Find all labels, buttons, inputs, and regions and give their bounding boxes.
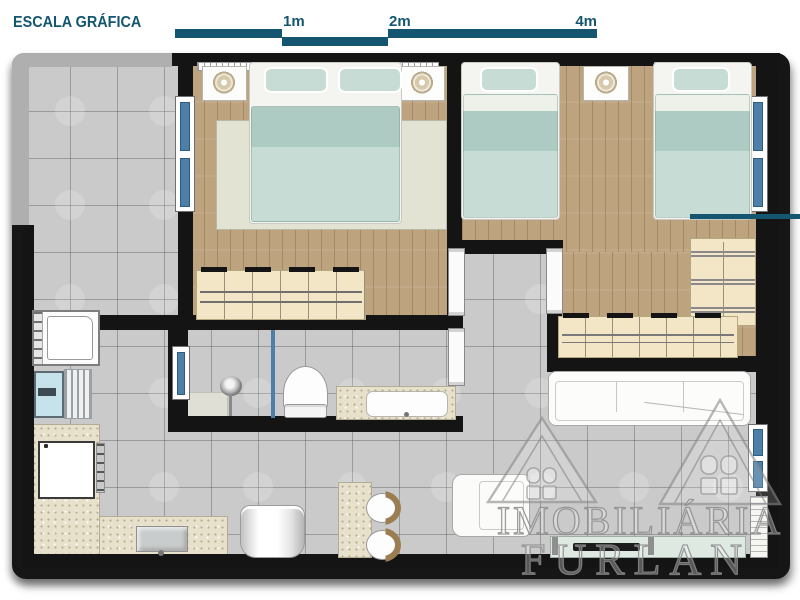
window-pane	[753, 461, 763, 488]
lamp-icon	[592, 71, 620, 95]
scale-label-2m: 2m	[389, 13, 411, 30]
pillow	[482, 69, 536, 90]
scale-bar-title: ESCALA GRÁFICA	[13, 14, 175, 34]
laundry-drainboard	[64, 369, 92, 419]
wall-closet-bottom	[547, 356, 768, 372]
entry-door	[750, 496, 768, 558]
pillow	[674, 69, 728, 90]
scale-bar-segment-1-2m	[282, 37, 388, 46]
bedroom1-window	[175, 96, 195, 212]
lamp-icon	[210, 71, 238, 95]
double-bed-cover	[251, 106, 400, 222]
shower-glass-partition	[271, 330, 275, 418]
faucet-icon	[404, 412, 409, 417]
armchair	[452, 474, 530, 537]
refrigerator-hinge	[34, 312, 43, 364]
sofa	[548, 371, 751, 426]
tv-rack-support	[648, 537, 654, 555]
wall-left-lower	[23, 225, 34, 568]
closet-wardrobe-horizontal	[558, 316, 738, 358]
kitchen-sink	[136, 526, 188, 552]
pillow	[340, 69, 400, 91]
bedroom1-dresser	[196, 270, 366, 320]
window-pane	[180, 158, 190, 207]
round-table	[240, 505, 305, 558]
pillow	[266, 69, 326, 91]
window-pane	[753, 158, 763, 207]
lamp-icon	[408, 71, 436, 95]
bar-stool	[366, 493, 399, 523]
kitchen-faucet-icon	[158, 550, 164, 556]
tv	[573, 543, 640, 551]
window-pane	[753, 102, 763, 151]
kitchen-rail	[96, 443, 105, 493]
bathroom-door	[448, 328, 465, 386]
single-bed-right-cover	[655, 94, 750, 218]
bedroom2-door	[546, 248, 563, 314]
bedroom1-door	[448, 248, 465, 316]
bar-stool	[366, 530, 399, 560]
floorplan-page: ESCALA GRÁFICA 1m 2m 4m	[0, 0, 800, 600]
bathroom-window	[172, 346, 190, 400]
gray-band-left	[12, 53, 29, 225]
window-pane	[177, 352, 185, 395]
shower-stem	[229, 394, 232, 416]
scale-label-4m: 4m	[555, 13, 597, 30]
scale-label-1m: 1m	[283, 13, 305, 30]
toilet-tank	[284, 404, 327, 418]
section-leader-line	[690, 214, 800, 219]
sofa-seam	[616, 382, 617, 412]
stove-cooktop	[38, 441, 95, 499]
shower-head-icon	[220, 376, 242, 396]
laundry-faucet-icon	[38, 388, 56, 396]
single-bed-left-cover	[463, 94, 558, 218]
window-pane	[753, 429, 763, 456]
tv-rack-support	[552, 537, 558, 555]
refrigerator-door	[47, 316, 93, 360]
window-pane	[180, 102, 190, 151]
sofa-throw	[644, 402, 743, 415]
scale-bar-segment-2-4m	[388, 29, 597, 38]
living-window	[748, 424, 768, 492]
gray-band-top	[12, 53, 172, 67]
scale-bar-segment-0-1m	[175, 29, 282, 38]
burner-icon	[44, 444, 48, 448]
